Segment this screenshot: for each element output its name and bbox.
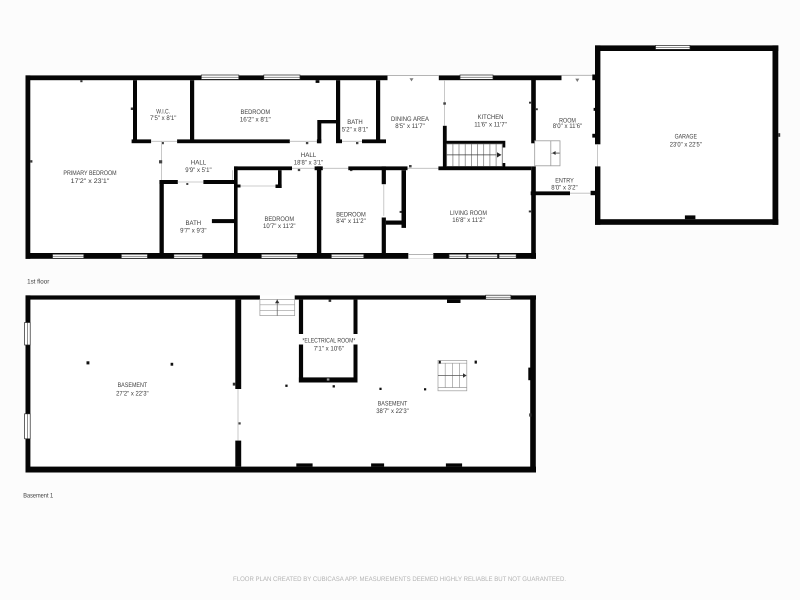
svg-text:7'1" x 10'6": 7'1" x 10'6": [314, 346, 345, 353]
svg-text:18'8" x 3'1": 18'8" x 3'1": [294, 160, 324, 167]
svg-text:5'2" x 8'1": 5'2" x 8'1": [342, 127, 369, 134]
svg-text:BASEMENT: BASEMENT: [118, 382, 148, 389]
svg-text:BEDROOM: BEDROOM: [265, 216, 295, 223]
svg-text:BATH: BATH: [347, 119, 363, 126]
svg-text:8'0" x 3'2": 8'0" x 3'2": [551, 184, 578, 191]
svg-text:HALL: HALL: [191, 160, 207, 167]
svg-text:PRIMARY BEDROOM: PRIMARY BEDROOM: [63, 170, 116, 177]
svg-text:*ELECTRICAL ROOM*: *ELECTRICAL ROOM*: [302, 338, 355, 345]
svg-text:11'6" x 11'7": 11'6" x 11'7": [474, 122, 507, 129]
svg-text:16'8" x 11'2": 16'8" x 11'2": [452, 217, 485, 224]
svg-text:8'5" x 11'7": 8'5" x 11'7": [395, 123, 425, 130]
svg-text:10'7" x 11'2": 10'7" x 11'2": [263, 223, 296, 230]
svg-text:17'2" x 23'1": 17'2" x 23'1": [71, 178, 110, 185]
svg-text:38'7" x 22'3": 38'7" x 22'3": [376, 408, 409, 415]
svg-text:DINING AREA: DINING AREA: [391, 116, 430, 123]
svg-text:8'4" x 11'2": 8'4" x 11'2": [336, 218, 366, 225]
svg-text:1st floor: 1st floor: [27, 279, 50, 286]
svg-text:HALL: HALL: [301, 152, 317, 159]
svg-text:ENTRY: ENTRY: [555, 177, 574, 184]
svg-text:FLOOR PLAN CREATED BY CUBICASA: FLOOR PLAN CREATED BY CUBICASA APP. MEAS…: [233, 576, 566, 583]
svg-text:Basement 1: Basement 1: [23, 493, 53, 500]
svg-text:KITCHEN: KITCHEN: [478, 114, 504, 121]
svg-text:GARAGE: GARAGE: [675, 134, 698, 141]
svg-text:8'0" x 11'6": 8'0" x 11'6": [553, 123, 583, 130]
svg-text:9'9" x 5'1": 9'9" x 5'1": [185, 167, 212, 174]
svg-text:16'2" x 8'1": 16'2" x 8'1": [240, 117, 272, 124]
svg-text:BEDROOM: BEDROOM: [241, 109, 271, 116]
svg-text:23'0" x 22'5": 23'0" x 22'5": [670, 141, 703, 148]
svg-text:7'5" x 8'1": 7'5" x 8'1": [150, 115, 177, 122]
svg-text:27'2" x 22'3": 27'2" x 22'3": [116, 390, 149, 397]
svg-text:9'7" x 9'3": 9'7" x 9'3": [180, 228, 207, 235]
svg-text:BATH: BATH: [186, 220, 202, 227]
svg-text:BASEMENT: BASEMENT: [378, 401, 408, 408]
